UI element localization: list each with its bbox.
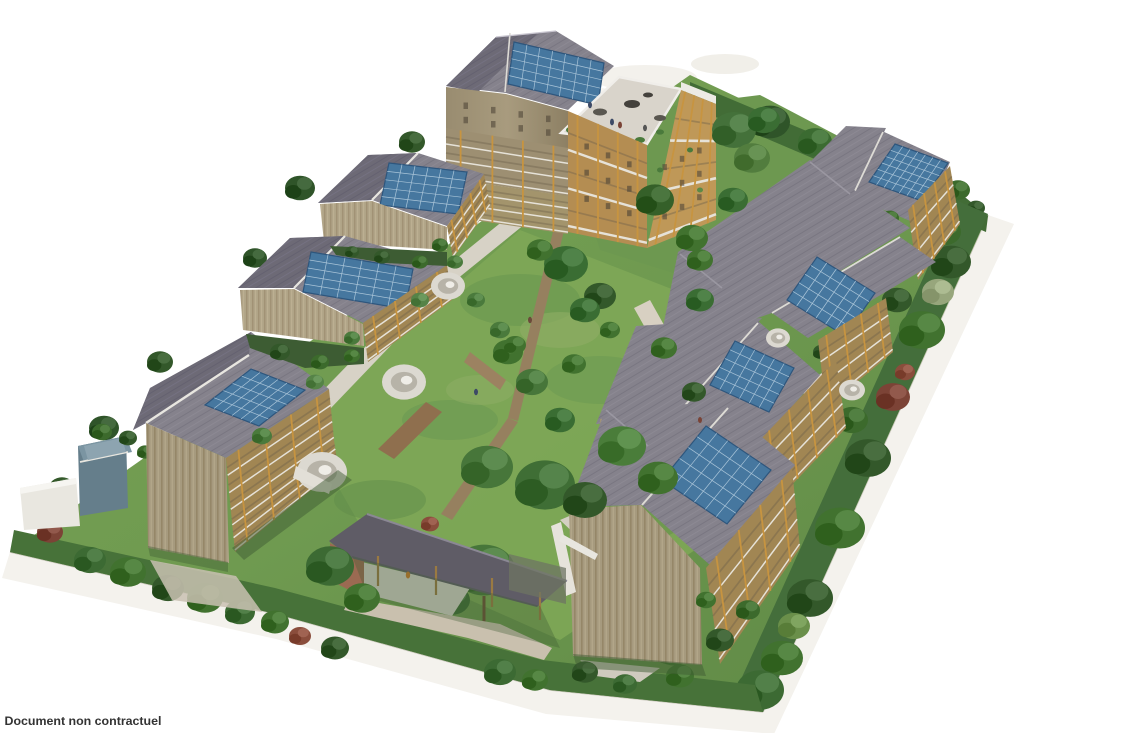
svg-text:Document non contractuel: Document non contractuel [5,714,162,728]
